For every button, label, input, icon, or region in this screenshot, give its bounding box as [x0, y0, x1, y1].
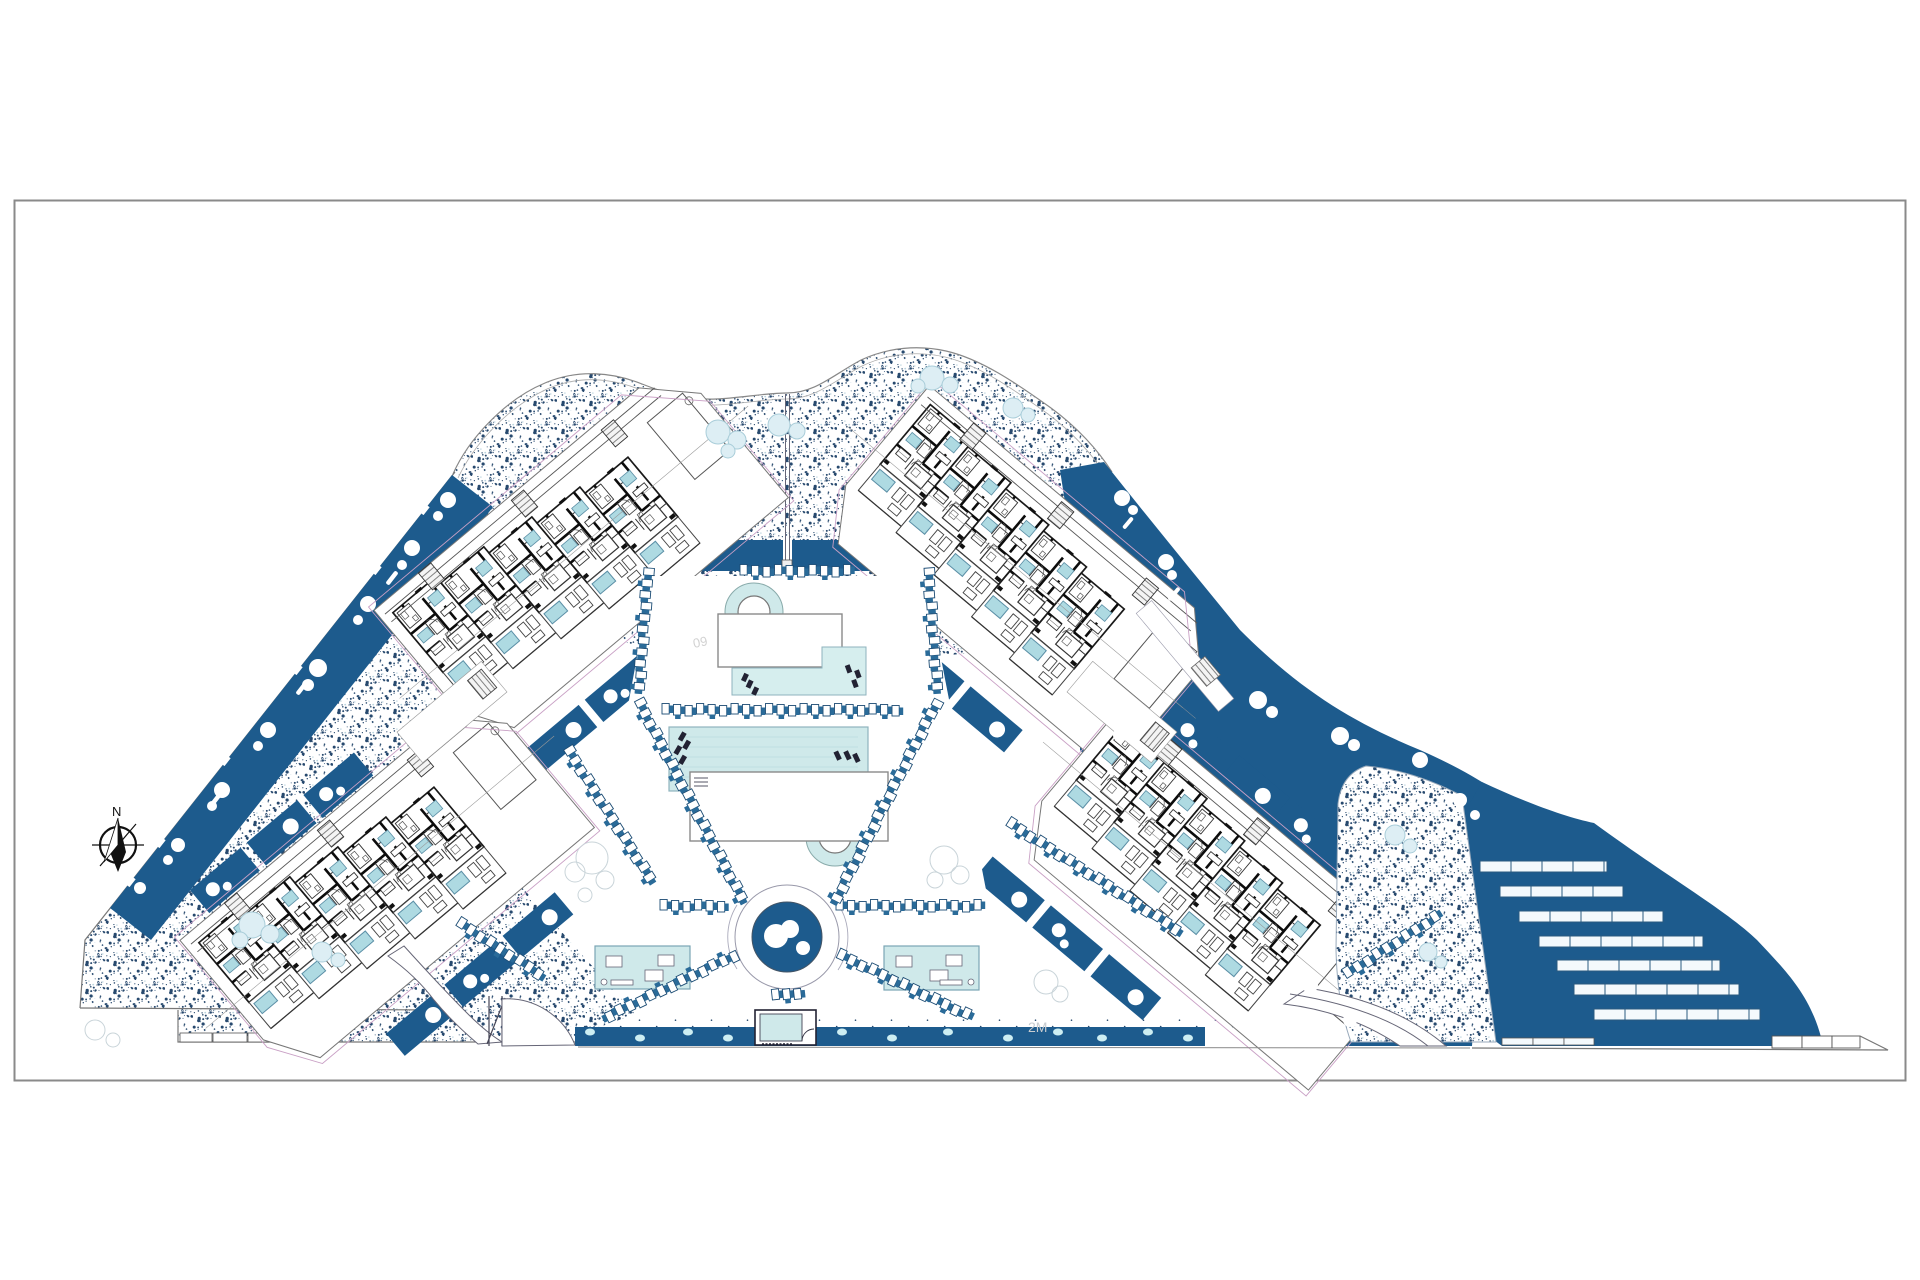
svg-text:2M: 2M — [1028, 1019, 1047, 1035]
svg-text:N: N — [112, 804, 121, 819]
svg-text:09: 09 — [692, 633, 709, 651]
